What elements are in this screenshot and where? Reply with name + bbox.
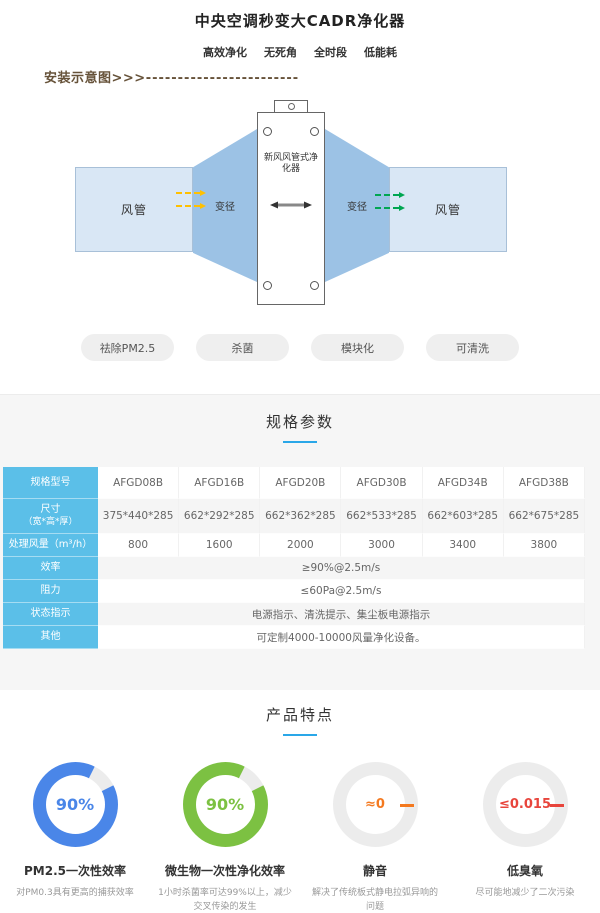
features-title: 产品特点 [0, 704, 600, 725]
stat-description: 尽可能地减少了二次污染 [467, 886, 582, 900]
specs-section: 规格参数 规格型号 AFGD08B AFGD16B AFGD20B AFGD30… [0, 394, 600, 690]
model-cell: AFGD20B [260, 467, 341, 499]
stat-quiet: ≈0 静音 解决了传统板式静电拉弧异响的问题 [300, 762, 450, 913]
tag-modular[interactable]: 模块化 [311, 334, 404, 361]
installation-diagram: 风管 变径 新风风管式净化器 变 [0, 90, 600, 318]
status-cell: 电源指示、清洗提示、集尘板电源指示 [98, 603, 585, 626]
airflow-cell: 3400 [423, 534, 504, 557]
donut-chart-pm25: 90% [33, 762, 118, 847]
donut-value: 90% [33, 762, 118, 847]
install-diagram-heading: 安装示意图>>>------------------------ [44, 67, 600, 86]
stat-description: 对PM0.3具有更高的捕获效率 [8, 886, 142, 900]
airflow-cell: 1600 [179, 534, 260, 557]
donut-chart-ozone: ≤0.015 [483, 762, 568, 847]
row-header-status: 状态指示 [3, 603, 98, 626]
duct-left-label: 风管 [121, 201, 147, 218]
row-header-size: 尺寸 （宽*高*厚） [3, 499, 98, 534]
selling-point: 全时段 [314, 44, 347, 60]
efficiency-cell: ≥90%@2.5m/s [98, 557, 585, 580]
duct-right-label: 风管 [435, 201, 461, 218]
size-cell: 375*440*285 [98, 499, 179, 534]
device-top-fitting [274, 100, 308, 113]
stat-low-ozone: ≤0.015 低臭氧 尽可能地减少了二次污染 [450, 762, 600, 913]
airflow-cell: 2000 [260, 534, 341, 557]
bolt-icon [263, 281, 272, 290]
stat-label: 静音 [363, 862, 387, 879]
tag-sterilize[interactable]: 杀菌 [196, 334, 289, 361]
model-cell: AFGD16B [179, 467, 260, 499]
table-row-efficiency: 效率 ≥90%@2.5m/s [3, 557, 585, 580]
page-title: 中央空调秒变大CADR净化器 [0, 10, 600, 31]
double-arrow-icon [270, 201, 312, 209]
donut-chart-quiet: ≈0 [333, 762, 418, 847]
bolt-icon [263, 127, 272, 136]
table-row-status: 状态指示 电源指示、清洗提示、集尘板电源指示 [3, 603, 585, 626]
minus-indicator-icon [400, 804, 414, 807]
title-underline [283, 734, 317, 736]
selling-points: 高效净化 无死角 全时段 低能耗 [0, 44, 600, 60]
donut-chart-microbe: 90% [183, 762, 268, 847]
bolt-icon [310, 127, 319, 136]
decorative-dashes: ------------------------ [146, 71, 300, 86]
row-header-airflow: 处理风量（m³/h） [3, 534, 98, 557]
row-header-resistance: 阻力 [3, 580, 98, 603]
stat-description: 解决了传统板式静电拉弧异响的问题 [300, 886, 450, 913]
airflow-arrow-icon [176, 190, 206, 197]
tag-washable[interactable]: 可清洗 [426, 334, 519, 361]
stat-pm25-efficiency: 90% PM2.5一次性效率 对PM0.3具有更高的捕获效率 [0, 762, 150, 913]
header-section: 中央空调秒变大CADR净化器 高效净化 无死角 全时段 低能耗 安装示意图>>>… [0, 0, 600, 394]
fitting-knob [288, 103, 295, 110]
install-label: 安装示意图>>> [44, 71, 146, 86]
selling-point: 无死角 [264, 44, 297, 60]
size-cell: 662*362*285 [260, 499, 341, 534]
stat-label: 微生物一次性净化效率 [165, 862, 285, 879]
donut-value: 90% [183, 762, 268, 847]
selling-point: 低能耗 [364, 44, 397, 60]
size-cell: 662*603*285 [423, 499, 504, 534]
other-cell: 可定制4000-10000风量净化设备。 [98, 626, 585, 649]
model-cell: AFGD34B [423, 467, 504, 499]
stat-description: 1小时杀菌率可达99%以上，减少交叉传染的发生 [150, 886, 300, 913]
specs-title: 规格参数 [0, 411, 600, 432]
row-header-other: 其他 [3, 626, 98, 649]
features-section: 产品特点 90% PM2.5一次性效率 对PM0.3具有更高的捕获效率 90% … [0, 690, 600, 913]
row-header-efficiency: 效率 [3, 557, 98, 580]
airflow-arrow-icon [375, 205, 405, 212]
feature-stats: 90% PM2.5一次性效率 对PM0.3具有更高的捕获效率 90% 微生物一次… [0, 762, 600, 913]
table-row-airflow: 处理风量（m³/h） 800 1600 2000 3000 3400 3800 [3, 534, 585, 557]
selling-point: 高效净化 [203, 44, 247, 60]
model-cell: AFGD38B [504, 467, 585, 499]
spec-table: 规格型号 AFGD08B AFGD16B AFGD20B AFGD30B AFG… [3, 467, 585, 649]
bolt-icon [310, 281, 319, 290]
table-row-resistance: 阻力 ≤60Pa@2.5m/s [3, 580, 585, 603]
reducer-left-label: 变径 [215, 198, 235, 213]
size-cell: 662*292*285 [179, 499, 260, 534]
airflow-out-arrows [375, 192, 405, 212]
airflow-arrow-icon [176, 203, 206, 210]
size-cell: 662*675*285 [504, 499, 585, 534]
stat-label: 低臭氧 [507, 862, 543, 879]
model-cell: AFGD30B [341, 467, 422, 499]
resistance-cell: ≤60Pa@2.5m/s [98, 580, 585, 603]
purifier-device: 新风风管式净化器 [257, 112, 325, 305]
stat-microbe-efficiency: 90% 微生物一次性净化效率 1小时杀菌率可达99%以上，减少交叉传染的发生 [150, 762, 300, 913]
model-cell: AFGD08B [98, 467, 179, 499]
stat-label: PM2.5一次性效率 [24, 862, 126, 879]
product-page: 中央空调秒变大CADR净化器 高效净化 无死角 全时段 低能耗 安装示意图>>>… [0, 0, 600, 913]
airflow-cell: 800 [98, 534, 179, 557]
airflow-cell: 3000 [341, 534, 422, 557]
row-header-model: 规格型号 [3, 467, 98, 499]
minus-indicator-icon [550, 804, 564, 807]
reducer-right-label: 变径 [347, 198, 367, 213]
airflow-cell: 3800 [504, 534, 585, 557]
feature-tags: 祛除PM2.5 杀菌 模块化 可清洗 [0, 334, 600, 394]
airflow-arrow-icon [375, 192, 405, 199]
table-row-other: 其他 可定制4000-10000风量净化设备。 [3, 626, 585, 649]
table-row-size: 尺寸 （宽*高*厚） 375*440*285 662*292*285 662*3… [3, 499, 585, 534]
size-cell: 662*533*285 [341, 499, 422, 534]
title-underline [283, 441, 317, 443]
airflow-in-arrows [176, 190, 206, 210]
device-label: 新风风管式净化器 [258, 153, 324, 175]
duct-right: 风管 [389, 167, 507, 252]
tag-remove-pm25[interactable]: 祛除PM2.5 [81, 334, 174, 361]
table-row-model: 规格型号 AFGD08B AFGD16B AFGD20B AFGD30B AFG… [3, 467, 585, 499]
